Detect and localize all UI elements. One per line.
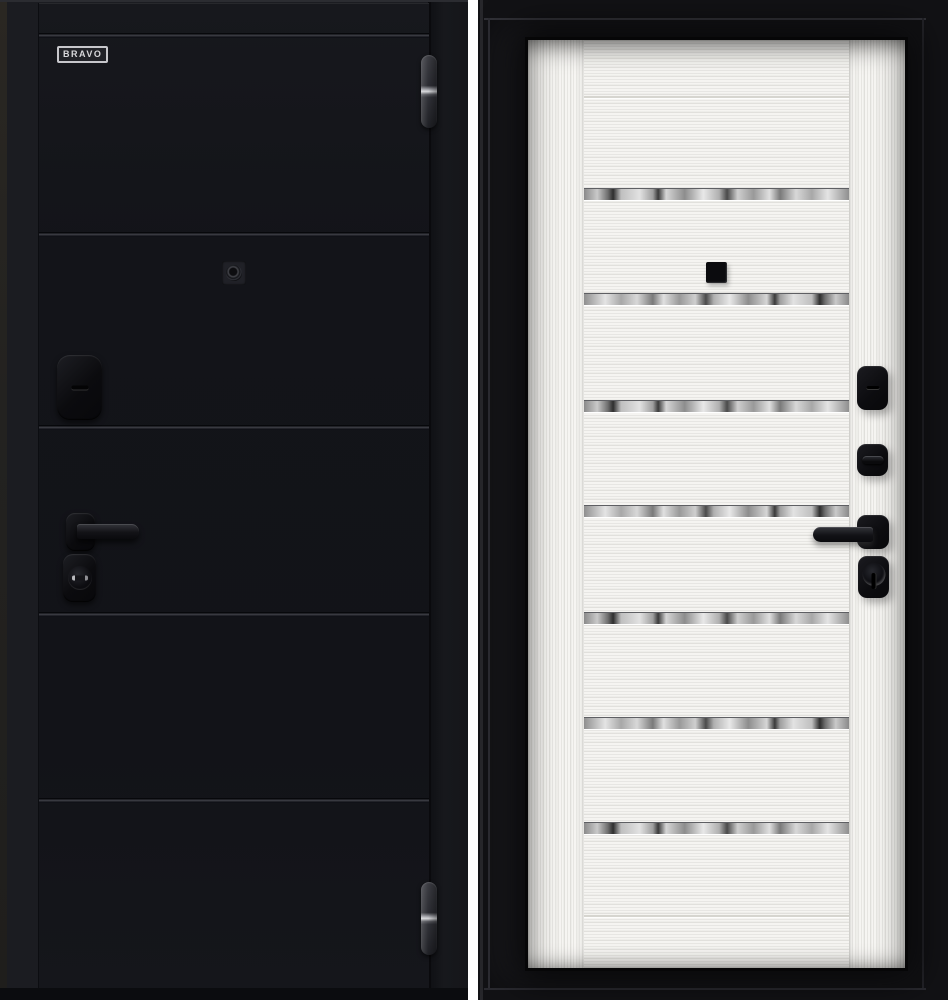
left-stile <box>528 40 584 968</box>
right-stile <box>849 40 905 968</box>
frame-bevel-top <box>484 18 926 20</box>
latch-slot <box>866 386 879 390</box>
top-frame-line <box>0 0 468 2</box>
frame-bevel-right <box>922 18 924 990</box>
panel-seam <box>584 915 849 917</box>
mirror-strip <box>584 717 849 730</box>
mirror-strip <box>584 400 849 413</box>
brand-logo: BRAVO <box>57 46 108 63</box>
black-door-leaf: BRAVO <box>38 3 429 988</box>
mirror-strip <box>584 188 849 201</box>
frame-edge-highlight <box>480 0 483 1000</box>
frame-bevel-left <box>488 18 490 990</box>
frame-bevel-bottom <box>484 988 926 990</box>
lock-slot <box>71 385 88 390</box>
mirror-strip <box>584 293 849 306</box>
barrel-hinge-icon-bottom <box>421 882 437 955</box>
white-door-leaf <box>528 40 905 968</box>
key-cylinder-icon <box>63 554 96 602</box>
exterior-side-photo: BRAVO <box>0 0 468 1000</box>
panel-seam <box>584 96 849 98</box>
lock-escutcheon-icon <box>57 355 102 420</box>
barrel-hinge-icon-top <box>421 55 437 128</box>
right-jamb <box>431 0 468 988</box>
left-jamb-edge <box>0 0 7 1000</box>
peephole-lens <box>226 265 242 281</box>
thumbturn-knob <box>862 456 883 464</box>
interior-side-photo <box>478 0 948 1000</box>
peephole-icon <box>706 262 727 283</box>
peephole-icon <box>222 261 246 285</box>
door-product-photo: BRAVO <box>0 0 948 1000</box>
photo-divider <box>468 0 478 1000</box>
thumbturn-icon <box>857 444 888 476</box>
key-cylinder-icon <box>858 556 889 598</box>
groove-line <box>39 798 429 803</box>
groove-line <box>39 232 429 237</box>
groove-line <box>39 33 429 38</box>
keyhole-slot <box>72 576 88 581</box>
mirror-strip <box>584 612 849 625</box>
mirror-strip <box>584 822 849 835</box>
keyway-slot <box>871 573 876 589</box>
lever-handle-icon <box>813 527 873 542</box>
mirror-strip <box>584 505 849 518</box>
threshold <box>0 988 468 1000</box>
night-latch-icon <box>857 366 888 410</box>
groove-line <box>39 612 429 617</box>
lever-handle-icon <box>77 524 139 539</box>
groove-line <box>39 425 429 430</box>
